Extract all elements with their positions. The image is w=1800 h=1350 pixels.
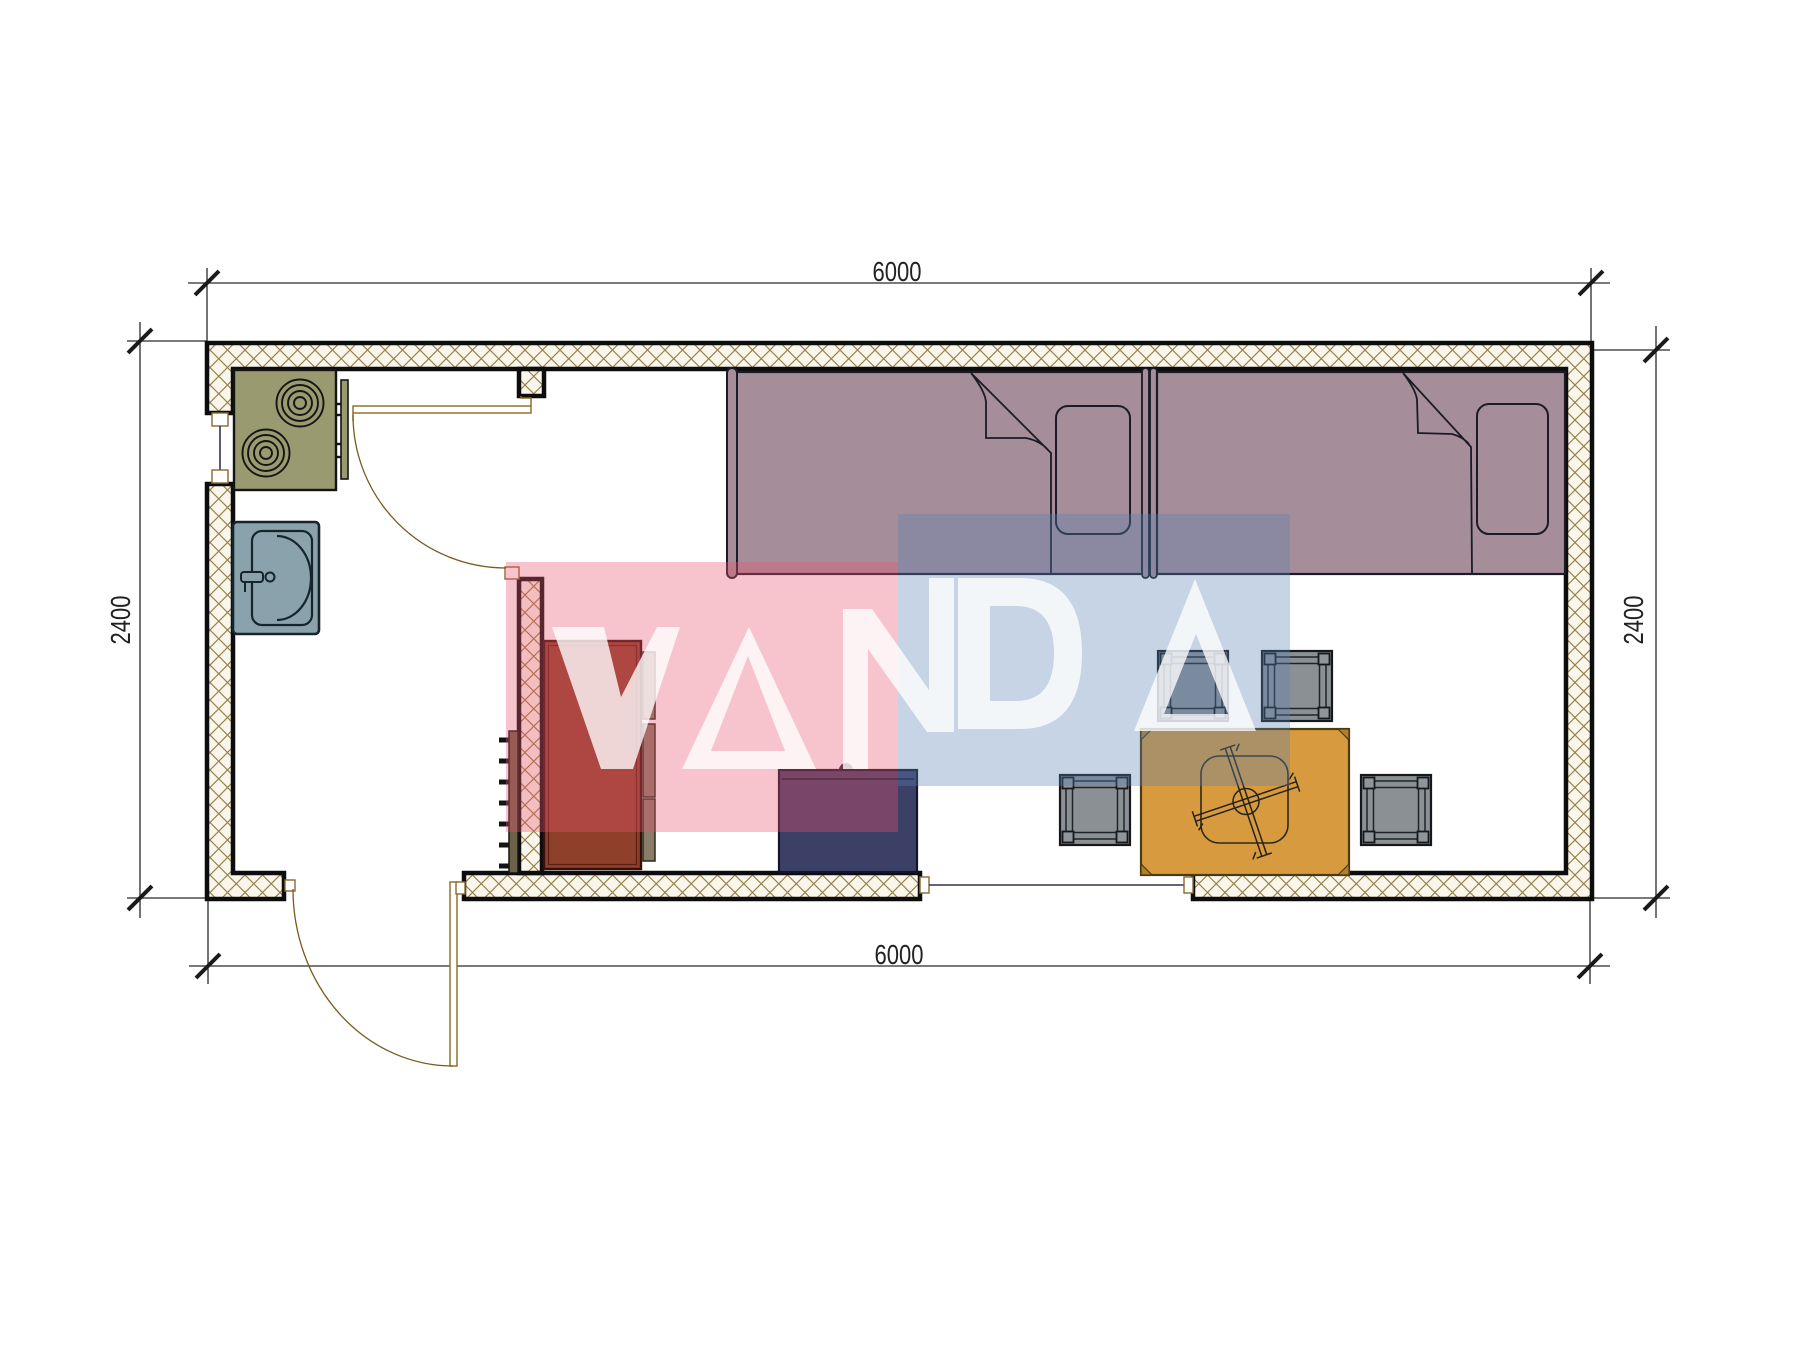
svg-text:6000: 6000: [873, 256, 922, 287]
svg-text:2400: 2400: [1618, 596, 1649, 645]
svg-text:2400: 2400: [105, 596, 136, 645]
svg-text:6000: 6000: [875, 939, 924, 970]
